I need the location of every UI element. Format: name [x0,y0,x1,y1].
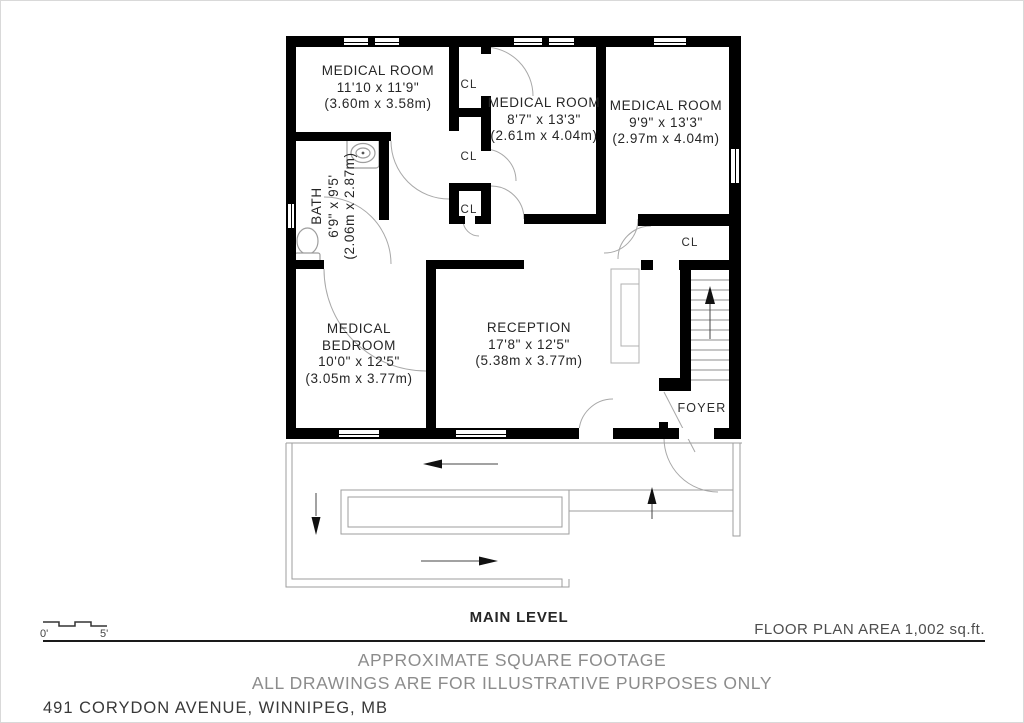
room-dims-metric: (3.60m x 3.58m) [288,96,468,113]
room-dims-imperial: 17'8" x 12'5" [429,337,629,354]
interior-wall [680,270,691,379]
room-name: MEDICAL ROOM [288,63,468,80]
ramp-direction-arrows [312,460,657,566]
room-label-reception: RECEPTION 17'8" x 12'5" (5.38m x 3.77m) [429,320,629,370]
room-label-medical-room-top-right: MEDICAL ROOM 9'9" x 13'3" (2.97m x 4.04m… [601,98,731,148]
footer-divider [43,640,985,642]
room-dims-metric: (3.05m x 3.77m) [299,371,419,388]
room-dims-imperial: 11'10 x 11'9" [288,80,468,97]
floor-plan: MEDICAL ROOM 11'10 x 11'9" (3.60m x 3.58… [0,0,1024,723]
window [729,149,741,183]
room-dims-metric: (2.97m x 4.04m) [601,131,731,148]
room-label-bath: BATH 6'9" x 9'5' (2.06m x 2.87m) [309,146,359,266]
closet-label: CL [670,237,710,249]
room-name: MEDICAL BEDROOM [299,321,419,354]
room-name: MEDICAL ROOM [479,95,609,112]
scale-bar [43,622,107,626]
interior-wall [449,216,465,224]
disclaimer-line-1: APPROXIMATE SQUARE FOOTAGE [1,650,1023,671]
room-dims-imperial: 6'9" x 9'5' [326,146,343,266]
interior-wall [659,422,668,428]
room-label-foyer: FOYER [662,401,742,415]
level-title: MAIN LEVEL [419,609,619,626]
interior-wall [641,260,653,270]
interior-wall [481,46,491,54]
room-name: BATH [309,146,326,266]
room-dims-metric: (2.06m x 2.87m) [342,146,359,266]
room-name: MEDICAL ROOM [601,98,731,115]
interior-wall [475,216,491,224]
window [654,36,686,47]
stairs-up-arrow [705,286,715,339]
room-dims-imperial: 10'0" x 12'5" [299,354,419,371]
floor-plan-area: FLOOR PLAN AREA 1,002 sq.ft. [685,621,985,638]
window [286,204,296,228]
room-label-medical-room-top-left: MEDICAL ROOM 11'10 x 11'9" (3.60m x 3.58… [288,63,468,113]
closet-label: CL [449,79,489,91]
window [456,428,506,439]
room-dims-imperial: 9'9" x 13'3" [601,115,731,132]
interior-wall [679,260,729,270]
closet-label: CL [449,151,489,163]
disclaimer-line-2: ALL DRAWINGS ARE FOR ILLUSTRATIVE PURPOS… [1,673,1023,694]
room-dims-imperial: 8'7" x 13'3" [479,112,609,129]
scale-label-end: 5' [100,628,108,640]
exterior-wall-right [729,36,741,439]
ramp-walkway [286,443,742,587]
interior-wall [379,132,389,220]
room-dims-metric: (5.38m x 3.77m) [429,353,629,370]
scale-label-start: 0' [40,628,48,640]
window [339,428,379,439]
interior-wall [659,378,691,391]
property-address: 491 CORYDON AVENUE, WINNIPEG, MB [43,699,388,718]
interior-wall [426,260,524,269]
door-opening [579,428,613,439]
closet-label: CL [449,204,489,216]
interior-wall [524,214,604,224]
room-label-medical-room-top-middle: MEDICAL ROOM 8'7" x 13'3" (2.61m x 4.04m… [479,95,609,145]
window-mullion [542,36,549,47]
room-label-medical-bedroom: MEDICAL BEDROOM 10'0" x 12'5" (3.05m x 3… [299,321,419,387]
window-mullion [368,36,375,47]
interior-wall [286,132,391,141]
room-name: RECEPTION [429,320,629,337]
interior-wall [449,183,491,191]
room-dims-metric: (2.61m x 4.04m) [479,128,609,145]
interior-wall [638,214,729,226]
door-opening [679,428,714,439]
